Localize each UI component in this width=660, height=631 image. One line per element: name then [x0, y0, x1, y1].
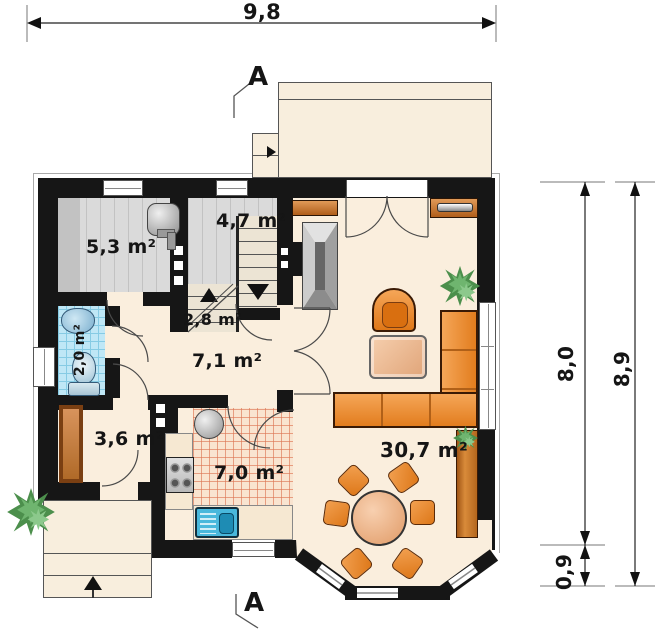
fireplace-icon — [302, 222, 338, 310]
room-label-kitchen: 7,0 m² — [214, 462, 284, 484]
interior-wall — [105, 358, 120, 398]
stairs-arrow-down-icon — [247, 284, 269, 300]
dimension-right-bay-label: 0,9 — [552, 547, 576, 597]
dimension-top-label: 9,8 — [234, 0, 290, 24]
room-label-living: 30,7 m² — [380, 438, 468, 462]
stove-icon — [166, 457, 194, 493]
room-label-stairs: 2,8 m² — [183, 310, 242, 329]
dining-chair — [322, 499, 350, 527]
interior-wall — [277, 390, 293, 412]
outer-outline — [499, 173, 500, 553]
outer-outline — [33, 173, 34, 499]
entrance-arrow-stem — [92, 590, 94, 598]
interior-wall — [143, 292, 188, 306]
wardrobe — [59, 405, 83, 483]
room-label-vestibule: 3,6 m² — [94, 428, 164, 450]
boiler-room-floor-edge — [58, 198, 80, 292]
armchair — [372, 288, 416, 332]
tv-cabinet — [430, 198, 478, 218]
room-label-hall: 7,1 m² — [192, 350, 262, 372]
window-kitchen — [232, 542, 275, 557]
dimension-right-total-label: 8,9 — [610, 344, 634, 394]
kitchen-bottom-wall — [150, 540, 232, 558]
interior-wall — [178, 395, 228, 408]
plant-icon — [438, 262, 482, 310]
window-living — [479, 302, 496, 430]
kitchen-sink-icon — [195, 507, 239, 538]
dining-chair — [410, 500, 435, 525]
interior-wall — [138, 482, 165, 500]
chimney-flue — [156, 404, 165, 413]
terrace-door-opening — [346, 180, 428, 197]
chimney-flue — [281, 261, 288, 268]
window-top-left — [103, 180, 143, 196]
boiler-pipe — [168, 233, 175, 249]
room-label-storage: 4,7 m² — [216, 210, 286, 232]
terrace — [278, 82, 492, 178]
fridge-icon — [194, 409, 224, 439]
interior-wall — [58, 292, 107, 306]
chimney-flue — [174, 246, 183, 255]
dimension-right-main-label: 8,0 — [554, 339, 578, 389]
plant-icon — [5, 478, 57, 546]
dining-table — [351, 490, 407, 546]
floor-plan: 5,3 m² 4,7 m² 2,8 m² 7,1 m² 2,0 m² 3,6 m… — [0, 0, 660, 631]
room-label-boiler: 5,3 m² — [86, 236, 156, 258]
interior-wall — [105, 306, 120, 326]
window-top-middle — [216, 180, 248, 196]
corner-sofa-bottom — [333, 392, 478, 428]
wall-shelf — [292, 200, 338, 216]
stairs-arrow-up-icon — [200, 288, 218, 302]
window-wc — [33, 347, 55, 387]
dimension-top — [0, 0, 660, 50]
chimney-flue — [281, 248, 288, 255]
chimney-flue — [174, 276, 183, 285]
entrance-arrow-icon — [84, 576, 102, 590]
room-label-wc: 2,0 m² — [72, 318, 88, 382]
stair-wall-stub — [238, 308, 280, 320]
section-mark-bottom-label: A — [244, 588, 264, 618]
chimney-flue — [156, 418, 165, 427]
section-mark-top-label: A — [248, 62, 268, 92]
coffee-table — [369, 335, 427, 379]
terrace-step-arrow-icon — [267, 146, 276, 158]
chimney-flue — [174, 261, 183, 270]
